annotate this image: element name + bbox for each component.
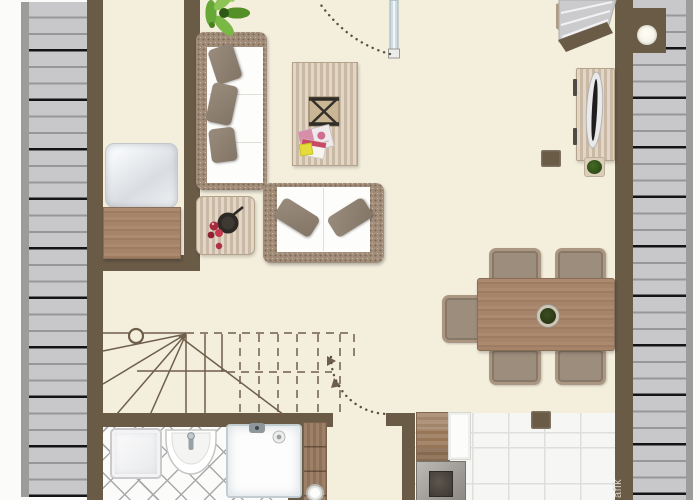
outer-wall-left xyxy=(87,0,103,500)
terrace-deck-left xyxy=(21,2,95,497)
dining-chair xyxy=(489,347,541,385)
planter xyxy=(584,157,605,177)
floor-plan-image: afik xyxy=(0,0,700,500)
tv-sideboard xyxy=(576,68,615,161)
sofa-pillow xyxy=(208,127,238,164)
cushion-seam xyxy=(323,188,324,251)
centerpiece-bowl xyxy=(537,305,559,327)
side-table xyxy=(196,196,255,255)
loveseat xyxy=(263,183,384,263)
corner-sofa xyxy=(196,32,267,190)
kitchen-wall-left xyxy=(402,413,415,500)
dining-chair xyxy=(555,347,606,385)
stool xyxy=(541,150,561,167)
kitchen-pillar xyxy=(531,411,551,429)
planter-plant xyxy=(587,160,602,174)
sideboard-handle xyxy=(573,79,577,96)
kitchen-cabinet xyxy=(416,412,450,464)
watermark-text: afik xyxy=(612,479,624,498)
stove xyxy=(416,461,466,500)
outer-wall-right xyxy=(615,0,633,500)
vase xyxy=(306,484,324,500)
kitchen-counter xyxy=(448,412,471,460)
chimney-flue xyxy=(637,25,657,45)
daybed xyxy=(105,143,178,208)
dresser xyxy=(103,207,181,259)
shower xyxy=(226,424,302,498)
coffee-table xyxy=(292,62,358,166)
stove-hob xyxy=(429,471,453,497)
terrace-deck-right xyxy=(633,0,693,500)
sideboard-handle xyxy=(573,128,577,145)
washing-machine xyxy=(110,428,162,479)
